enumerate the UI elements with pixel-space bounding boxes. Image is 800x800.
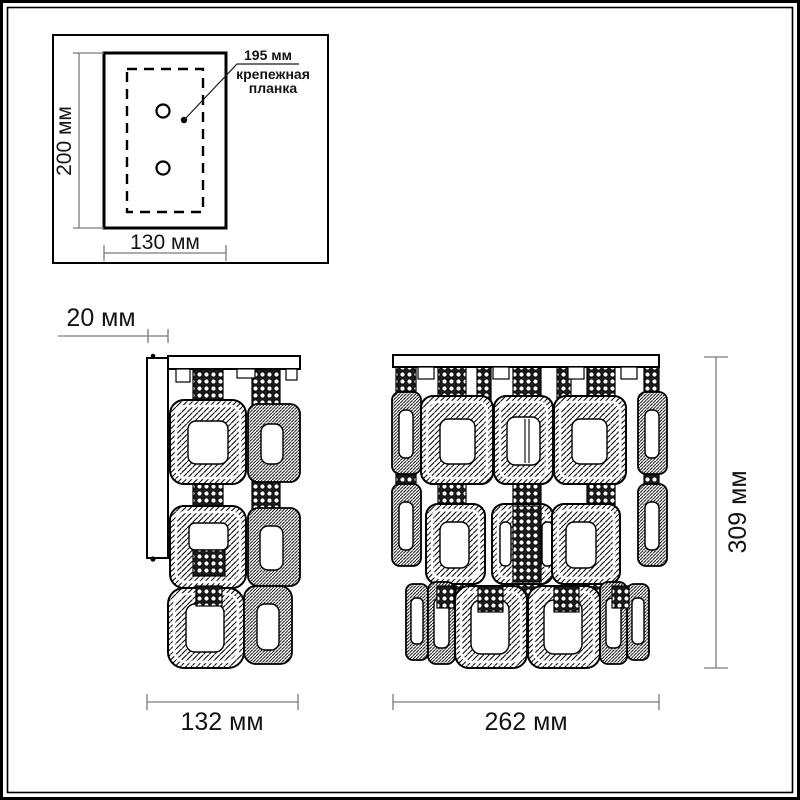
crystal-column-front bbox=[244, 404, 300, 664]
bracket bbox=[286, 369, 297, 380]
bead-chain-segment bbox=[193, 550, 225, 576]
crystal-hole bbox=[440, 522, 469, 568]
crystal-hole bbox=[440, 419, 475, 464]
dimension-309mm: 309 мм bbox=[704, 357, 752, 668]
bead-chain-segment bbox=[513, 506, 541, 582]
top-bar bbox=[168, 356, 300, 369]
drawing-canvas: 195 мм крепежная планка 200 мм 130 мм bbox=[0, 0, 800, 800]
bracket bbox=[621, 367, 637, 379]
dimension-130mm-label: 130 мм bbox=[130, 231, 200, 254]
crystal-column-back bbox=[168, 400, 246, 668]
crystal-row-1 bbox=[421, 396, 626, 484]
crystal-hole bbox=[260, 526, 283, 570]
crystal-hole bbox=[189, 523, 228, 550]
crystal-hole bbox=[632, 598, 644, 644]
crystal-hole bbox=[507, 417, 540, 465]
screw-hole-bottom bbox=[157, 162, 170, 175]
dimension-309mm-label: 309 мм bbox=[724, 470, 752, 553]
crystal-hole bbox=[645, 410, 659, 458]
dimension-262mm: 262 мм bbox=[393, 694, 659, 736]
mounting-plate-inset: 195 мм крепежная планка 200 мм 130 мм bbox=[53, 35, 328, 263]
bracket bbox=[418, 367, 434, 379]
bead-chain-segment bbox=[196, 586, 222, 606]
crystal-row-2 bbox=[426, 504, 620, 584]
dimension-262mm-label: 262 мм bbox=[484, 708, 567, 736]
top-bar bbox=[393, 355, 659, 367]
dimension-132mm: 132 мм bbox=[147, 694, 298, 736]
bead-chain-segment bbox=[478, 586, 503, 612]
crystal-hole bbox=[566, 522, 596, 568]
bead-chain-segment bbox=[554, 586, 579, 612]
crystal-hole bbox=[261, 424, 283, 464]
plate-screw-top bbox=[151, 354, 156, 359]
screw-hole-top bbox=[157, 105, 170, 118]
crystal-hole bbox=[645, 502, 659, 550]
bead-chain-segment bbox=[612, 586, 629, 608]
mounting-bracket-dashed-outline bbox=[127, 69, 203, 212]
crystal-hole bbox=[257, 604, 279, 650]
crystal-hole bbox=[411, 598, 423, 644]
side-view bbox=[147, 354, 300, 668]
crystal-hole bbox=[500, 522, 511, 566]
wall-plate bbox=[147, 358, 168, 558]
callout-value: 195 мм bbox=[244, 47, 292, 63]
bead-chain-segment bbox=[437, 586, 454, 608]
dimension-20mm: 20 мм bbox=[58, 304, 168, 343]
dimension-20mm-label: 20 мм bbox=[66, 304, 135, 332]
technical-drawing-page: 195 мм крепежная планка 200 мм 130 мм bbox=[0, 0, 800, 800]
dimension-132mm-label: 132 мм bbox=[180, 708, 263, 736]
crystal-hole bbox=[572, 419, 607, 464]
callout-caption-line2: планка bbox=[249, 80, 298, 96]
crystal-hole bbox=[399, 410, 413, 458]
bracket bbox=[176, 369, 190, 382]
front-view bbox=[392, 355, 667, 668]
bracket bbox=[568, 367, 584, 379]
plate-screw-bottom bbox=[150, 556, 155, 561]
bracket bbox=[493, 367, 509, 379]
crystal-hole bbox=[399, 502, 413, 550]
dimension-200mm-label: 200 мм bbox=[53, 106, 76, 176]
bracket bbox=[237, 369, 255, 378]
crystal-hole bbox=[188, 421, 228, 464]
crystal-hole bbox=[186, 604, 224, 652]
